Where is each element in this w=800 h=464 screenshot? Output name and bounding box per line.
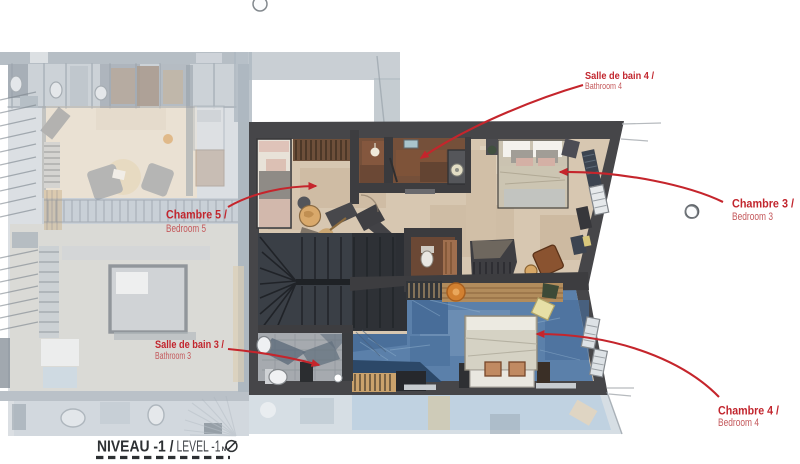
svg-text:Chambre 4 /: Chambre 4 / [718, 404, 780, 418]
svg-text:Salle de bain 3 /: Salle de bain 3 / [155, 339, 224, 351]
svg-text:Bedroom 4: Bedroom 4 [718, 417, 759, 429]
svg-text:Chambre 5 /: Chambre 5 / [166, 208, 228, 222]
svg-text:LEVEL -1: LEVEL -1 [177, 439, 221, 456]
svg-text:Bathroom 3: Bathroom 3 [155, 351, 191, 362]
svg-text:Bedroom 3: Bedroom 3 [732, 211, 773, 223]
svg-text:N: N [222, 447, 226, 453]
svg-text:Bathroom 4: Bathroom 4 [585, 81, 622, 92]
svg-text:Bedroom 5: Bedroom 5 [166, 223, 206, 235]
svg-text:Chambre 3 /: Chambre 3 / [732, 197, 795, 211]
svg-text:NIVEAU -1 /: NIVEAU -1 / [97, 439, 174, 456]
